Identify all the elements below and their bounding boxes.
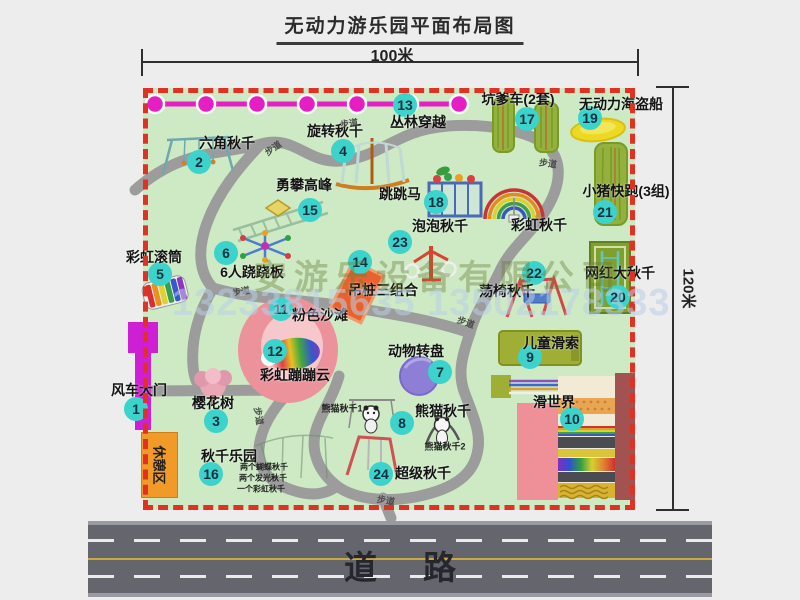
badge-rainbow-bouncing-cloud: 12 (263, 339, 287, 363)
top-dimension-tick-left (141, 49, 143, 76)
right-dimension-tick-top (656, 86, 689, 88)
label-peak-climbing: 勇攀高峰 (276, 175, 332, 195)
walkway-label-0: 步道 (339, 115, 359, 130)
watermark-phone: 13233815635 13502178333 (172, 282, 671, 325)
label-rainbow-swing: 彩虹秋千 (511, 215, 567, 235)
label-windmill-gate: 风车大门 (111, 380, 167, 400)
label-cherry-tree: 樱花树 (192, 393, 234, 413)
badge-super-swing: 24 (369, 462, 393, 486)
walkway-label-1: 步道 (262, 138, 284, 159)
badge-hexagon-swing: 2 (187, 150, 211, 174)
right-dimension-tick-bottom (656, 509, 689, 511)
badge-peak-climbing: 15 (298, 198, 322, 222)
road: 道路 (88, 521, 712, 597)
page-title: 无动力游乐园平面布局图 (276, 11, 523, 45)
walkway-label-5: 步道 (251, 406, 267, 426)
width-dimension-label: 100米 (352, 42, 432, 66)
label-kids-zipline: 儿童滑索 (523, 333, 579, 353)
sub-label-3: 两个发光秋千 (239, 473, 287, 484)
badge-rotating-swing: 4 (331, 139, 355, 163)
label-bubble-swing: 泡泡秋千 (412, 216, 468, 236)
sub-label-1: 熊猫秋千2 (424, 440, 465, 453)
sub-label-0: 熊猫秋千1 (321, 402, 362, 415)
walkway-label-6: 步道 (376, 492, 396, 508)
walkway-label-2: 步道 (538, 155, 558, 170)
label-animal-turntable: 动物转盘 (388, 341, 444, 361)
badge-animal-turntable: 7 (428, 360, 452, 384)
badge-jumping-horse: 18 (424, 190, 448, 214)
page: 无动力游乐园平面布局图 100米 120米 (0, 0, 800, 600)
label-jungle-crossing: 丛林穿越 (390, 112, 446, 132)
label-slide-world: 滑世界 (533, 392, 575, 412)
label-piggy-run: 小猪快跑(3组) (582, 181, 669, 201)
label-hexagon-swing: 六角秋千 (199, 133, 255, 153)
road-label: 道路 (88, 541, 712, 589)
badge-windmill-gate: 1 (124, 397, 148, 421)
badge-kengdie-car: 17 (515, 107, 539, 131)
label-jumping-horse: 跳跳马 (379, 184, 421, 204)
badge-piggy-run: 21 (593, 200, 617, 224)
label-super-swing: 超级秋千 (395, 463, 451, 483)
height-dimension-label: 120米 (679, 264, 700, 314)
label-panda-swing: 熊猫秋千 (415, 401, 471, 421)
label-rainbow-bouncing-cloud: 彩虹蹦蹦云 (260, 365, 330, 385)
top-dimension-tick-right (637, 49, 639, 76)
badge-panda-swing: 8 (390, 411, 414, 435)
label-rainbow-roller: 彩虹滚筒 (126, 247, 182, 267)
sub-label-2: 两个蝴蝶秋千 (240, 462, 288, 473)
right-dimension-line (672, 87, 674, 511)
label-pirate-ship: 无动力海盗船 (579, 94, 663, 114)
sub-label-4: 一个彩虹秋千 (237, 484, 285, 495)
label-kengdie-car: 坑爹车(2套) (481, 89, 554, 109)
